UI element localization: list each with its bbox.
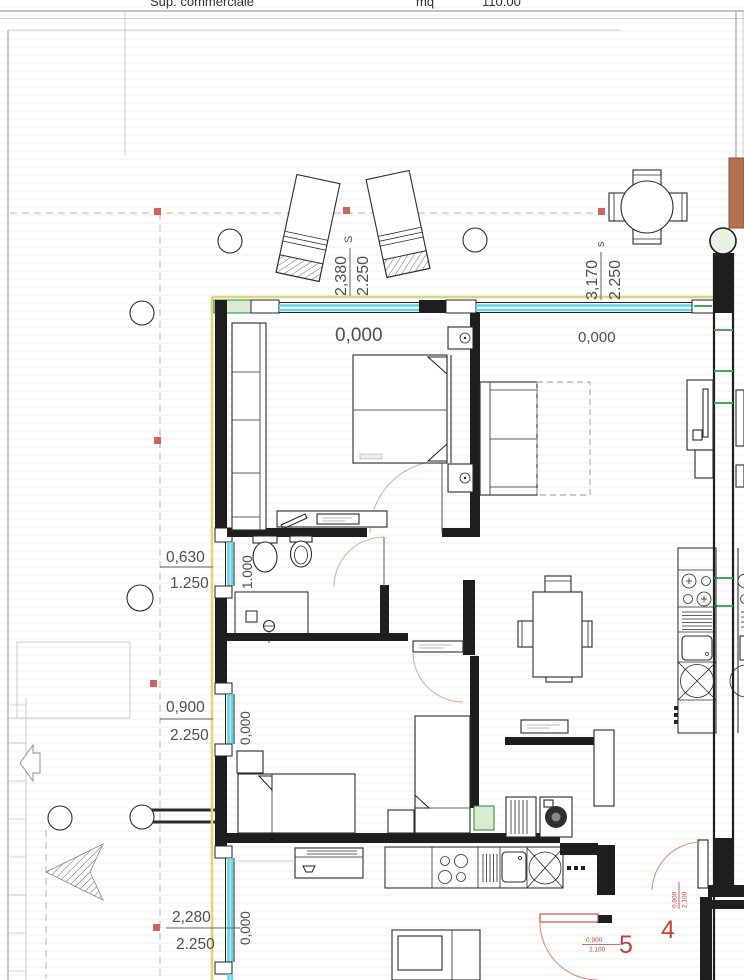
bedroom2: [237, 716, 494, 833]
door-leaf: [698, 840, 708, 888]
survey-marker: [343, 207, 350, 214]
scanned-floorplan-page: Sup. commerciale mq 110.00: [0, 0, 744, 980]
toilet: [253, 536, 277, 572]
ac-unit-label-box: [521, 720, 568, 733]
header-title: Sup. commerciale: [150, 0, 254, 9]
dim-table: s 3,170 2.250: [584, 241, 624, 300]
lower-unit: [227, 847, 585, 980]
terrace-table-set: [609, 170, 687, 244]
header-area: 110.00: [482, 0, 521, 9]
level-bed2-window: 0,000: [238, 711, 253, 745]
double-bed: [353, 355, 451, 463]
kitchen-counter: [674, 548, 716, 733]
dim-num: 3,170: [584, 260, 601, 300]
header-unit: mq: [416, 0, 434, 9]
terrace-circle: [218, 229, 242, 253]
party-wall: [710, 12, 744, 980]
door-number: 5: [619, 931, 633, 959]
hatched-arrow: [46, 844, 103, 900]
terrace-circle: [48, 806, 72, 830]
single-bed-vertical: [415, 716, 470, 833]
terrace-circle: [127, 585, 153, 611]
survey-marker: [598, 208, 605, 215]
nightstand: [237, 751, 263, 773]
door-leaf: [540, 914, 598, 922]
desk: [277, 511, 387, 529]
dim-num: 0,630: [166, 549, 205, 566]
floorplan-canvas: Sup. commerciale mq 110.00: [0, 0, 744, 980]
terrace-circle: [130, 805, 154, 829]
entry-door-4: [652, 840, 708, 890]
dim-den: 2.250: [355, 256, 372, 296]
bedroom1: [232, 323, 473, 530]
bedroom2-door: [413, 641, 463, 702]
dim-bath-window: 0,630 1.250: [160, 549, 213, 592]
sheet-header: Sup. commerciale mq 110.00: [0, 0, 744, 19]
level-bedroom-window: 0,000: [335, 325, 383, 346]
survey-marker: [150, 680, 157, 687]
lower-desk: [227, 848, 363, 878]
dim-den: 2.250: [176, 936, 215, 953]
door-dim-den: 2.100: [682, 891, 689, 908]
entry-closet: [594, 730, 614, 806]
survey-marker: [154, 437, 161, 444]
bathroom-door: [334, 537, 384, 587]
dim-lounger: S 2,380 2.250: [333, 236, 372, 296]
sink: [682, 636, 712, 660]
sun-lounger-right: [366, 171, 430, 278]
dim-den: 2.250: [170, 727, 209, 744]
bidet: [290, 536, 312, 567]
dim-bath-sill: 1.000: [240, 555, 255, 589]
dim-bed2-window: 0,900 2.250: [160, 699, 213, 744]
washing-machine: [506, 797, 536, 837]
tv-cabinet: [687, 380, 713, 478]
top-wall: [214, 300, 714, 313]
appliance-symbol: [678, 662, 716, 700]
dining-table: [533, 592, 582, 677]
door-number: 4: [661, 916, 675, 944]
level-kitchen-window: 0,000: [238, 911, 253, 945]
drainer: [682, 612, 712, 630]
door-dim-num: 0,900: [672, 891, 679, 908]
dryer: [540, 797, 572, 837]
nightstand: [448, 464, 473, 492]
dim-den: 1.250: [170, 575, 209, 592]
dim-num: 2,280: [172, 909, 211, 926]
nightstand: [448, 327, 473, 349]
round-table: [621, 181, 673, 233]
green-column: [474, 806, 494, 830]
single-bed-horizontal: [238, 774, 355, 833]
terrace-circle: [130, 301, 154, 325]
terrace-circle: [463, 228, 487, 252]
cooktop: [682, 574, 711, 606]
survey-marker: [154, 208, 161, 215]
sofa: [480, 382, 537, 495]
survey-marker: [153, 924, 160, 931]
lower-furniture: [392, 930, 480, 980]
structural-column: [710, 228, 736, 254]
dim-letter: S: [343, 236, 355, 243]
wardrobe: [232, 323, 266, 530]
door-dim-num: 0,900: [586, 937, 603, 944]
dim-letter: s: [595, 241, 607, 247]
dim-num: 0,900: [166, 699, 205, 716]
door4-label: 4 0,900 2.100: [661, 882, 689, 944]
sofa-bed-extension: [537, 382, 590, 495]
dim-num: 2,380: [333, 256, 350, 296]
nightstand: [388, 810, 414, 833]
lower-kitchen-counter: [385, 847, 585, 888]
level-living-window: 0,000: [578, 329, 616, 346]
sun-lounger-left: [276, 175, 340, 282]
dining-set: [518, 576, 592, 682]
door-dim-den: 2.100: [589, 947, 606, 954]
door5-label: 5 0,900 2.100: [582, 931, 633, 959]
left-arrow-outline: [20, 745, 40, 781]
dim-den: 2.250: [607, 260, 624, 300]
sienna-masonry-wall: [729, 158, 744, 228]
